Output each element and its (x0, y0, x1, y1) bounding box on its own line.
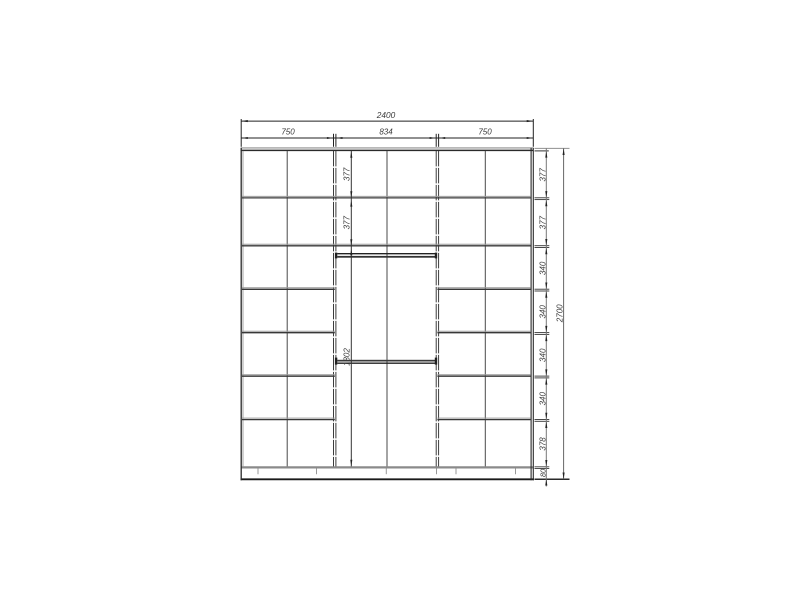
svg-text:377: 377 (539, 215, 548, 229)
svg-text:378: 378 (539, 437, 548, 451)
svg-text:340: 340 (539, 391, 548, 405)
svg-text:377: 377 (539, 168, 548, 182)
svg-text:377: 377 (342, 167, 351, 181)
svg-text:2400: 2400 (376, 110, 396, 120)
svg-text:340: 340 (539, 305, 548, 319)
svg-text:750: 750 (281, 127, 295, 136)
svg-text:340: 340 (539, 261, 548, 275)
svg-text:377: 377 (342, 215, 351, 229)
svg-text:834: 834 (379, 127, 393, 136)
svg-text:750: 750 (478, 127, 492, 136)
svg-text:80: 80 (538, 468, 547, 477)
svg-text:2700: 2700 (555, 304, 564, 323)
svg-text:340: 340 (539, 348, 548, 362)
svg-text:1802: 1802 (342, 348, 351, 366)
